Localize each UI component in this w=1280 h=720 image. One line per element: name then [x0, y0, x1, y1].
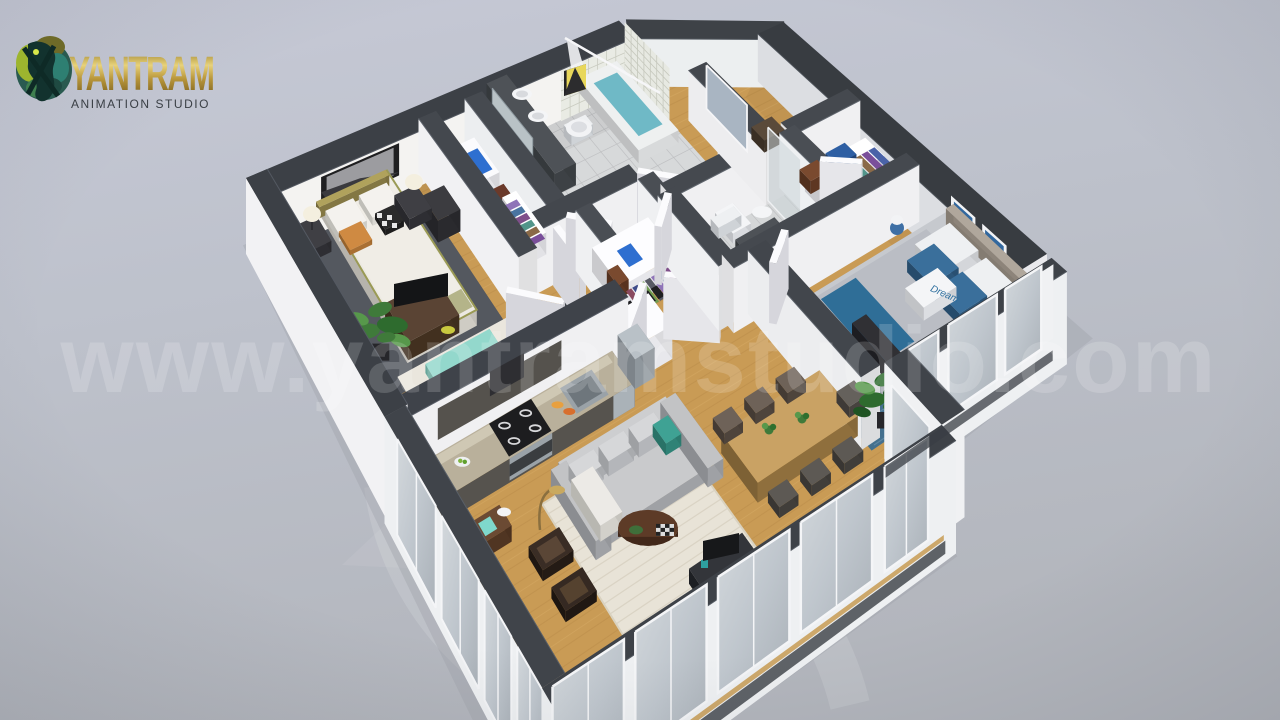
svg-text:www.yantramstudio.com: www.yantramstudio.com	[60, 307, 1216, 412]
svg-text:ANIMATION STUDIO: ANIMATION STUDIO	[71, 97, 212, 111]
svg-text:YANTRAM: YANTRAM	[69, 46, 215, 100]
